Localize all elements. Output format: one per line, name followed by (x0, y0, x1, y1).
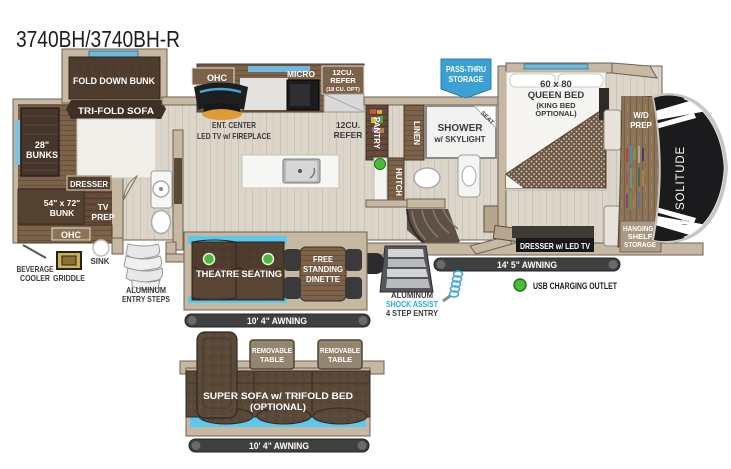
svg-text:GRIDDLE: GRIDDLE (53, 273, 85, 283)
svg-text:3740BH/3740BH-R: 3740BH/3740BH-R (16, 26, 180, 52)
svg-text:BUNKS: BUNKS (26, 150, 58, 160)
svg-text:BUNK: BUNK (50, 208, 75, 218)
svg-text:TRI-FOLD SOFA: TRI-FOLD SOFA (78, 106, 154, 117)
svg-text:PREP: PREP (91, 212, 114, 222)
svg-text:DINETTE: DINETTE (306, 274, 340, 284)
svg-text:LED TV w/ FIREPLACE: LED TV w/ FIREPLACE (197, 131, 271, 141)
svg-text:10' 4" AWNING: 10' 4" AWNING (247, 316, 307, 326)
svg-text:4 STEP ENTRY: 4 STEP ENTRY (386, 308, 438, 318)
svg-text:TABLE: TABLE (260, 355, 284, 364)
svg-text:54" x 72": 54" x 72" (44, 198, 80, 208)
svg-text:w/ SKYLIGHT: w/ SKYLIGHT (433, 135, 485, 144)
svg-text:SINK: SINK (91, 256, 111, 266)
svg-text:PANTRY: PANTRY (372, 117, 381, 150)
svg-text:QUEEN BED: QUEEN BED (528, 90, 585, 101)
svg-text:MICRO: MICRO (287, 69, 315, 79)
svg-text:REMOVABLE: REMOVABLE (252, 346, 292, 355)
svg-text:SHOWER: SHOWER (438, 123, 484, 134)
svg-text:FOLD DOWN BUNK: FOLD DOWN BUNK (73, 76, 155, 87)
svg-text:DRESSER: DRESSER (70, 180, 108, 189)
svg-text:THEATRE SEATING: THEATRE SEATING (196, 269, 282, 280)
svg-text:SUPER SOFA w/ TRIFOLD BED: SUPER SOFA w/ TRIFOLD BED (203, 391, 353, 402)
svg-text:OPTIONAL): OPTIONAL) (535, 109, 577, 118)
svg-text:USB CHARGING OUTLET: USB CHARGING OUTLET (533, 281, 617, 291)
svg-text:12CU.: 12CU. (336, 120, 360, 130)
svg-text:HUTCH: HUTCH (394, 168, 403, 196)
svg-text:STANDING: STANDING (303, 264, 343, 274)
svg-text:(18 CU. OPT): (18 CU. OPT) (326, 87, 360, 93)
svg-text:PASS-THRU: PASS-THRU (446, 65, 486, 74)
svg-text:COOLER: COOLER (20, 273, 50, 283)
svg-text:STORAGE: STORAGE (624, 240, 656, 249)
svg-text:PREP: PREP (630, 121, 652, 130)
svg-text:DRESSER w/ LED TV: DRESSER w/ LED TV (520, 241, 590, 251)
svg-text:TABLE: TABLE (328, 355, 352, 364)
svg-text:TV: TV (98, 202, 109, 212)
svg-text:FREE: FREE (313, 254, 333, 264)
svg-text:OHC: OHC (207, 73, 228, 83)
svg-text:10' 4" AWNING: 10' 4" AWNING (249, 441, 309, 451)
svg-text:28": 28" (35, 140, 49, 150)
svg-text:(OPTIONAL): (OPTIONAL) (250, 402, 306, 413)
svg-text:STORAGE: STORAGE (449, 75, 485, 84)
svg-text:ENTRY STEPS: ENTRY STEPS (122, 294, 170, 304)
svg-text:60 x 80: 60 x 80 (540, 79, 572, 90)
svg-text:SOLITUDE: SOLITUDE (675, 146, 687, 210)
svg-text:W/D: W/D (633, 111, 649, 120)
svg-text:LINEN: LINEN (412, 121, 421, 145)
svg-text:REFER: REFER (334, 130, 363, 140)
svg-text:REMOVABLE: REMOVABLE (320, 346, 360, 355)
svg-text:ENT. CENTER: ENT. CENTER (212, 120, 256, 130)
svg-text:OHC: OHC (61, 230, 82, 240)
svg-text:REFER: REFER (330, 76, 356, 85)
svg-text:14' 5" AWNING: 14' 5" AWNING (497, 260, 557, 270)
